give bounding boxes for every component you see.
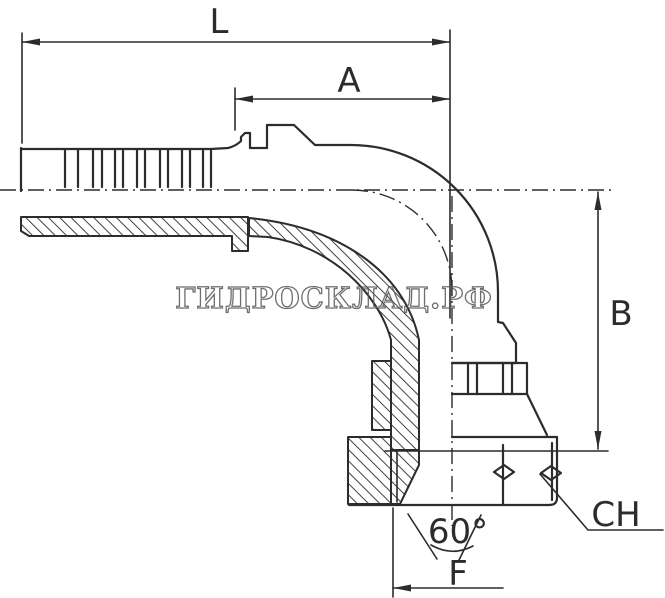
nut-wall-section — [348, 437, 391, 504]
section-hatch — [21, 217, 419, 504]
dimension-L: L — [22, 2, 450, 318]
cone-seat-section — [391, 450, 419, 504]
dimension-cone-angle: 60° — [408, 512, 488, 560]
dimension-CH: CH — [540, 474, 663, 535]
elbow-inner-wall — [249, 218, 419, 450]
dim-L-label: L — [210, 2, 229, 42]
dim-CH-label: CH — [591, 495, 640, 535]
fitting-drawing: L A B CH 60° F ГИДРОСКЛАД.РФ — [0, 0, 665, 598]
dim-cone-angle-label: 60° — [428, 512, 488, 552]
hose-tail-lower-wall — [21, 217, 248, 251]
dimension-A: A — [235, 61, 450, 130]
dim-A-label: A — [337, 61, 360, 101]
technical-drawing-canvas: L A B CH 60° F ГИДРОСКЛАД.РФ — [0, 0, 665, 598]
thread-band — [452, 363, 527, 394]
dim-F-label: F — [448, 554, 468, 594]
body-hex-section — [372, 361, 391, 430]
watermark-text: ГИДРОСКЛАД.РФ — [175, 281, 492, 315]
dim-B-label: B — [609, 294, 632, 334]
dimension-B: B — [595, 192, 633, 449]
part-outline — [21, 125, 608, 505]
barb-serrations — [65, 150, 211, 187]
